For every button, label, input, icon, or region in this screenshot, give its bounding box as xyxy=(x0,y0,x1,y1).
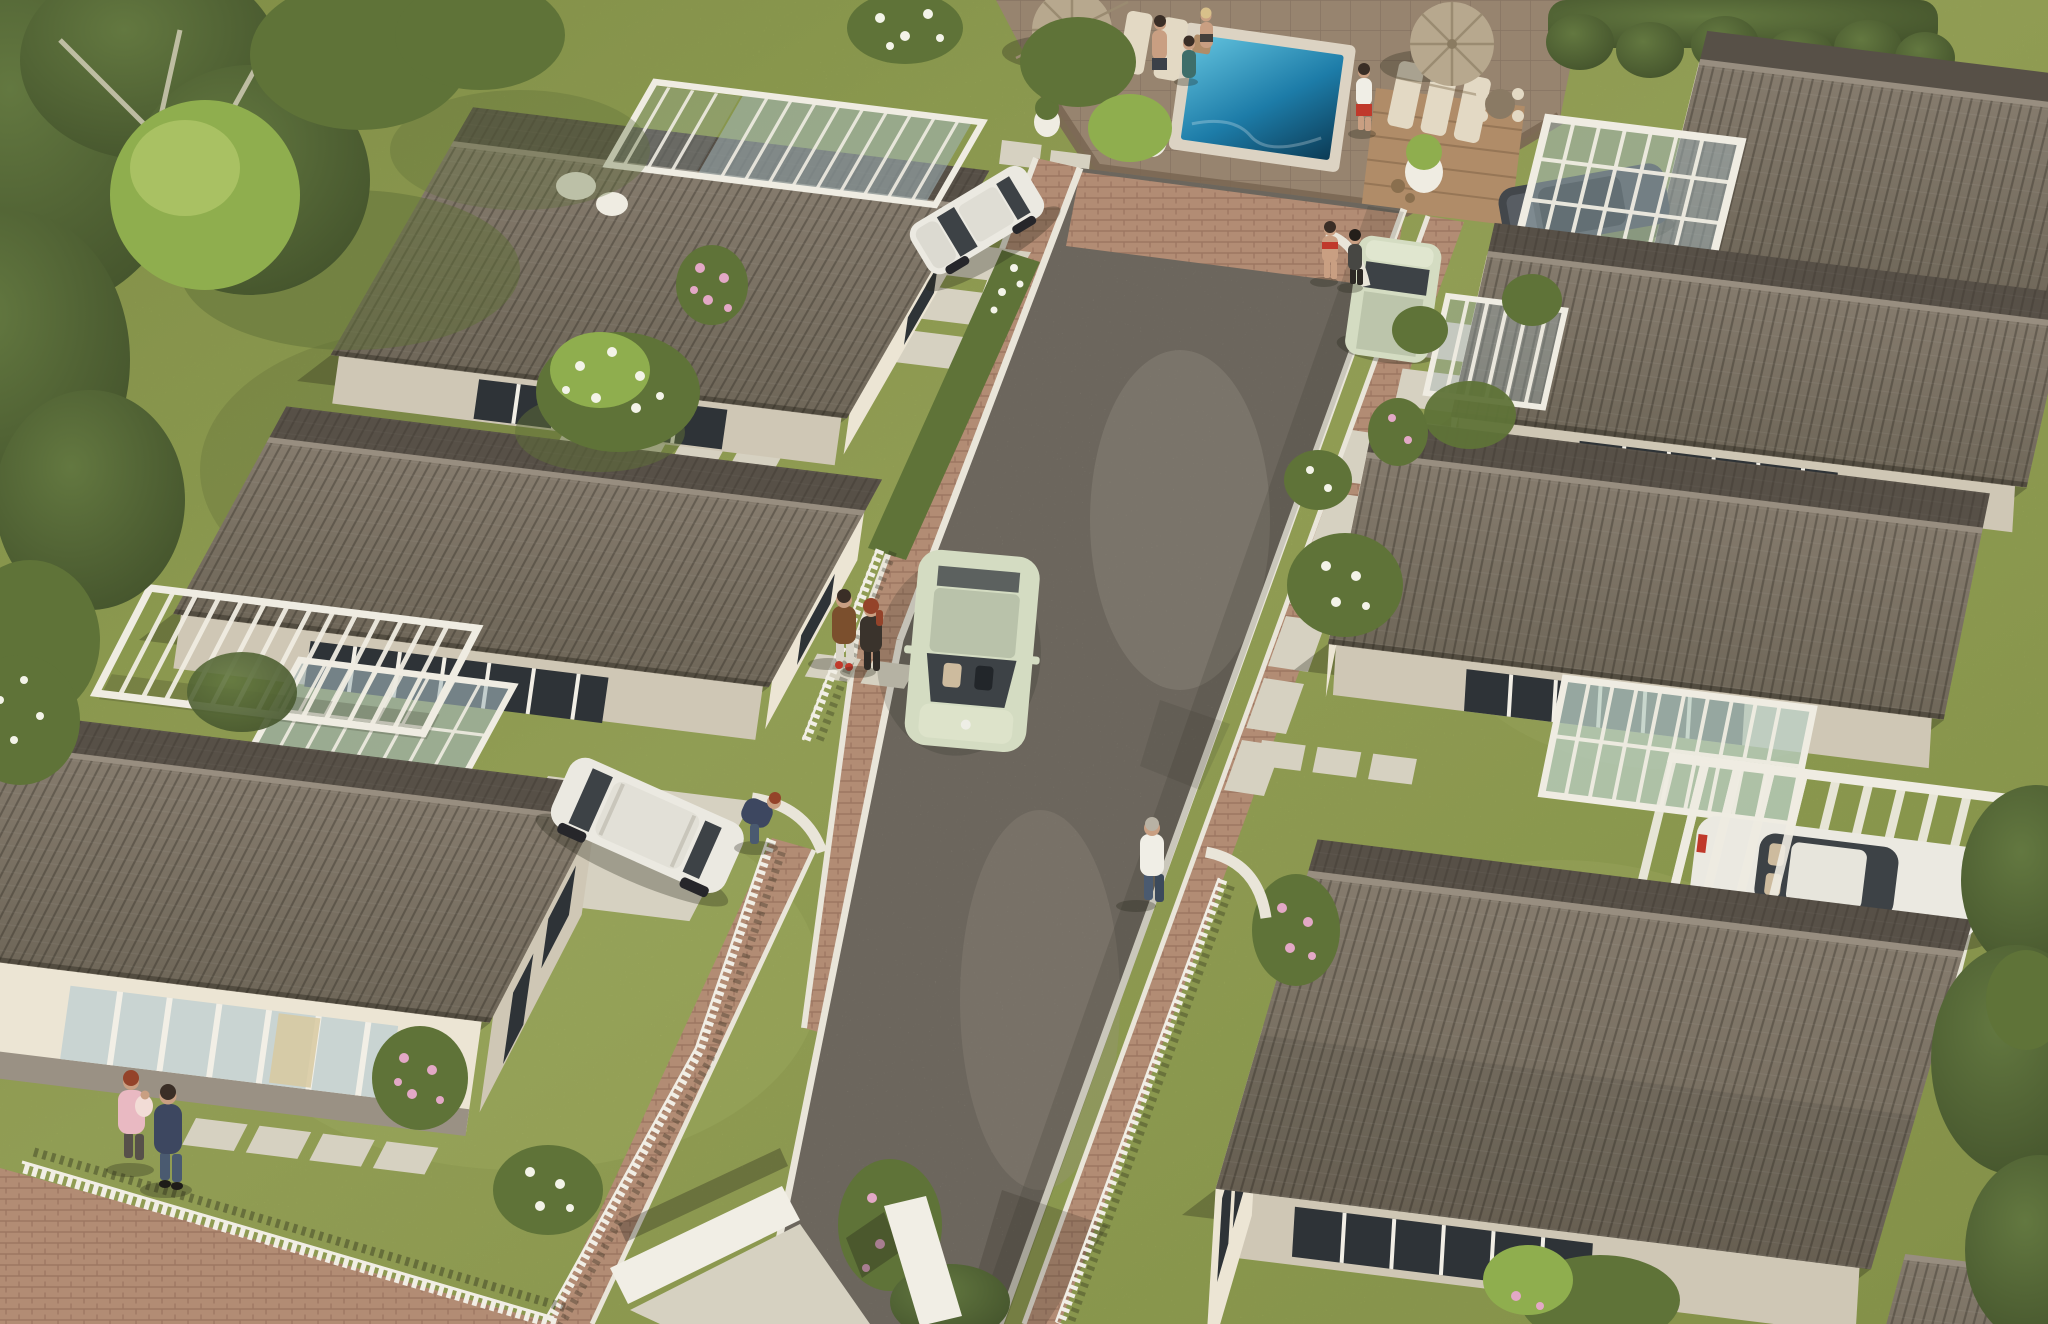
bikini-top xyxy=(1322,242,1338,249)
planter-pot xyxy=(1405,134,1443,193)
swim-shorts xyxy=(1152,58,1167,70)
swimsuit xyxy=(1200,34,1213,42)
ponytail xyxy=(876,610,883,626)
mirror xyxy=(904,645,917,654)
render-viewport: Sunny aerial 3D architectural rendering … xyxy=(0,0,2048,1324)
person-pool-2 xyxy=(1200,8,1213,49)
aerial-render: Sunny aerial 3D architectural rendering … xyxy=(0,0,2048,1324)
swim-shorts xyxy=(1356,104,1372,116)
shrub-pink-right-mid xyxy=(1252,874,1340,986)
car-seat xyxy=(942,663,962,688)
oleander-pink xyxy=(676,245,748,325)
shrub-bed-left xyxy=(187,652,297,732)
person-pool-4 xyxy=(1152,15,1167,70)
shrub-pink-lower-left xyxy=(372,1026,468,1130)
car-windshield xyxy=(923,653,1017,709)
mirror xyxy=(1027,656,1040,665)
tree-over-roof-right xyxy=(1424,381,1516,449)
shrub-white-lower-left xyxy=(493,1145,603,1235)
